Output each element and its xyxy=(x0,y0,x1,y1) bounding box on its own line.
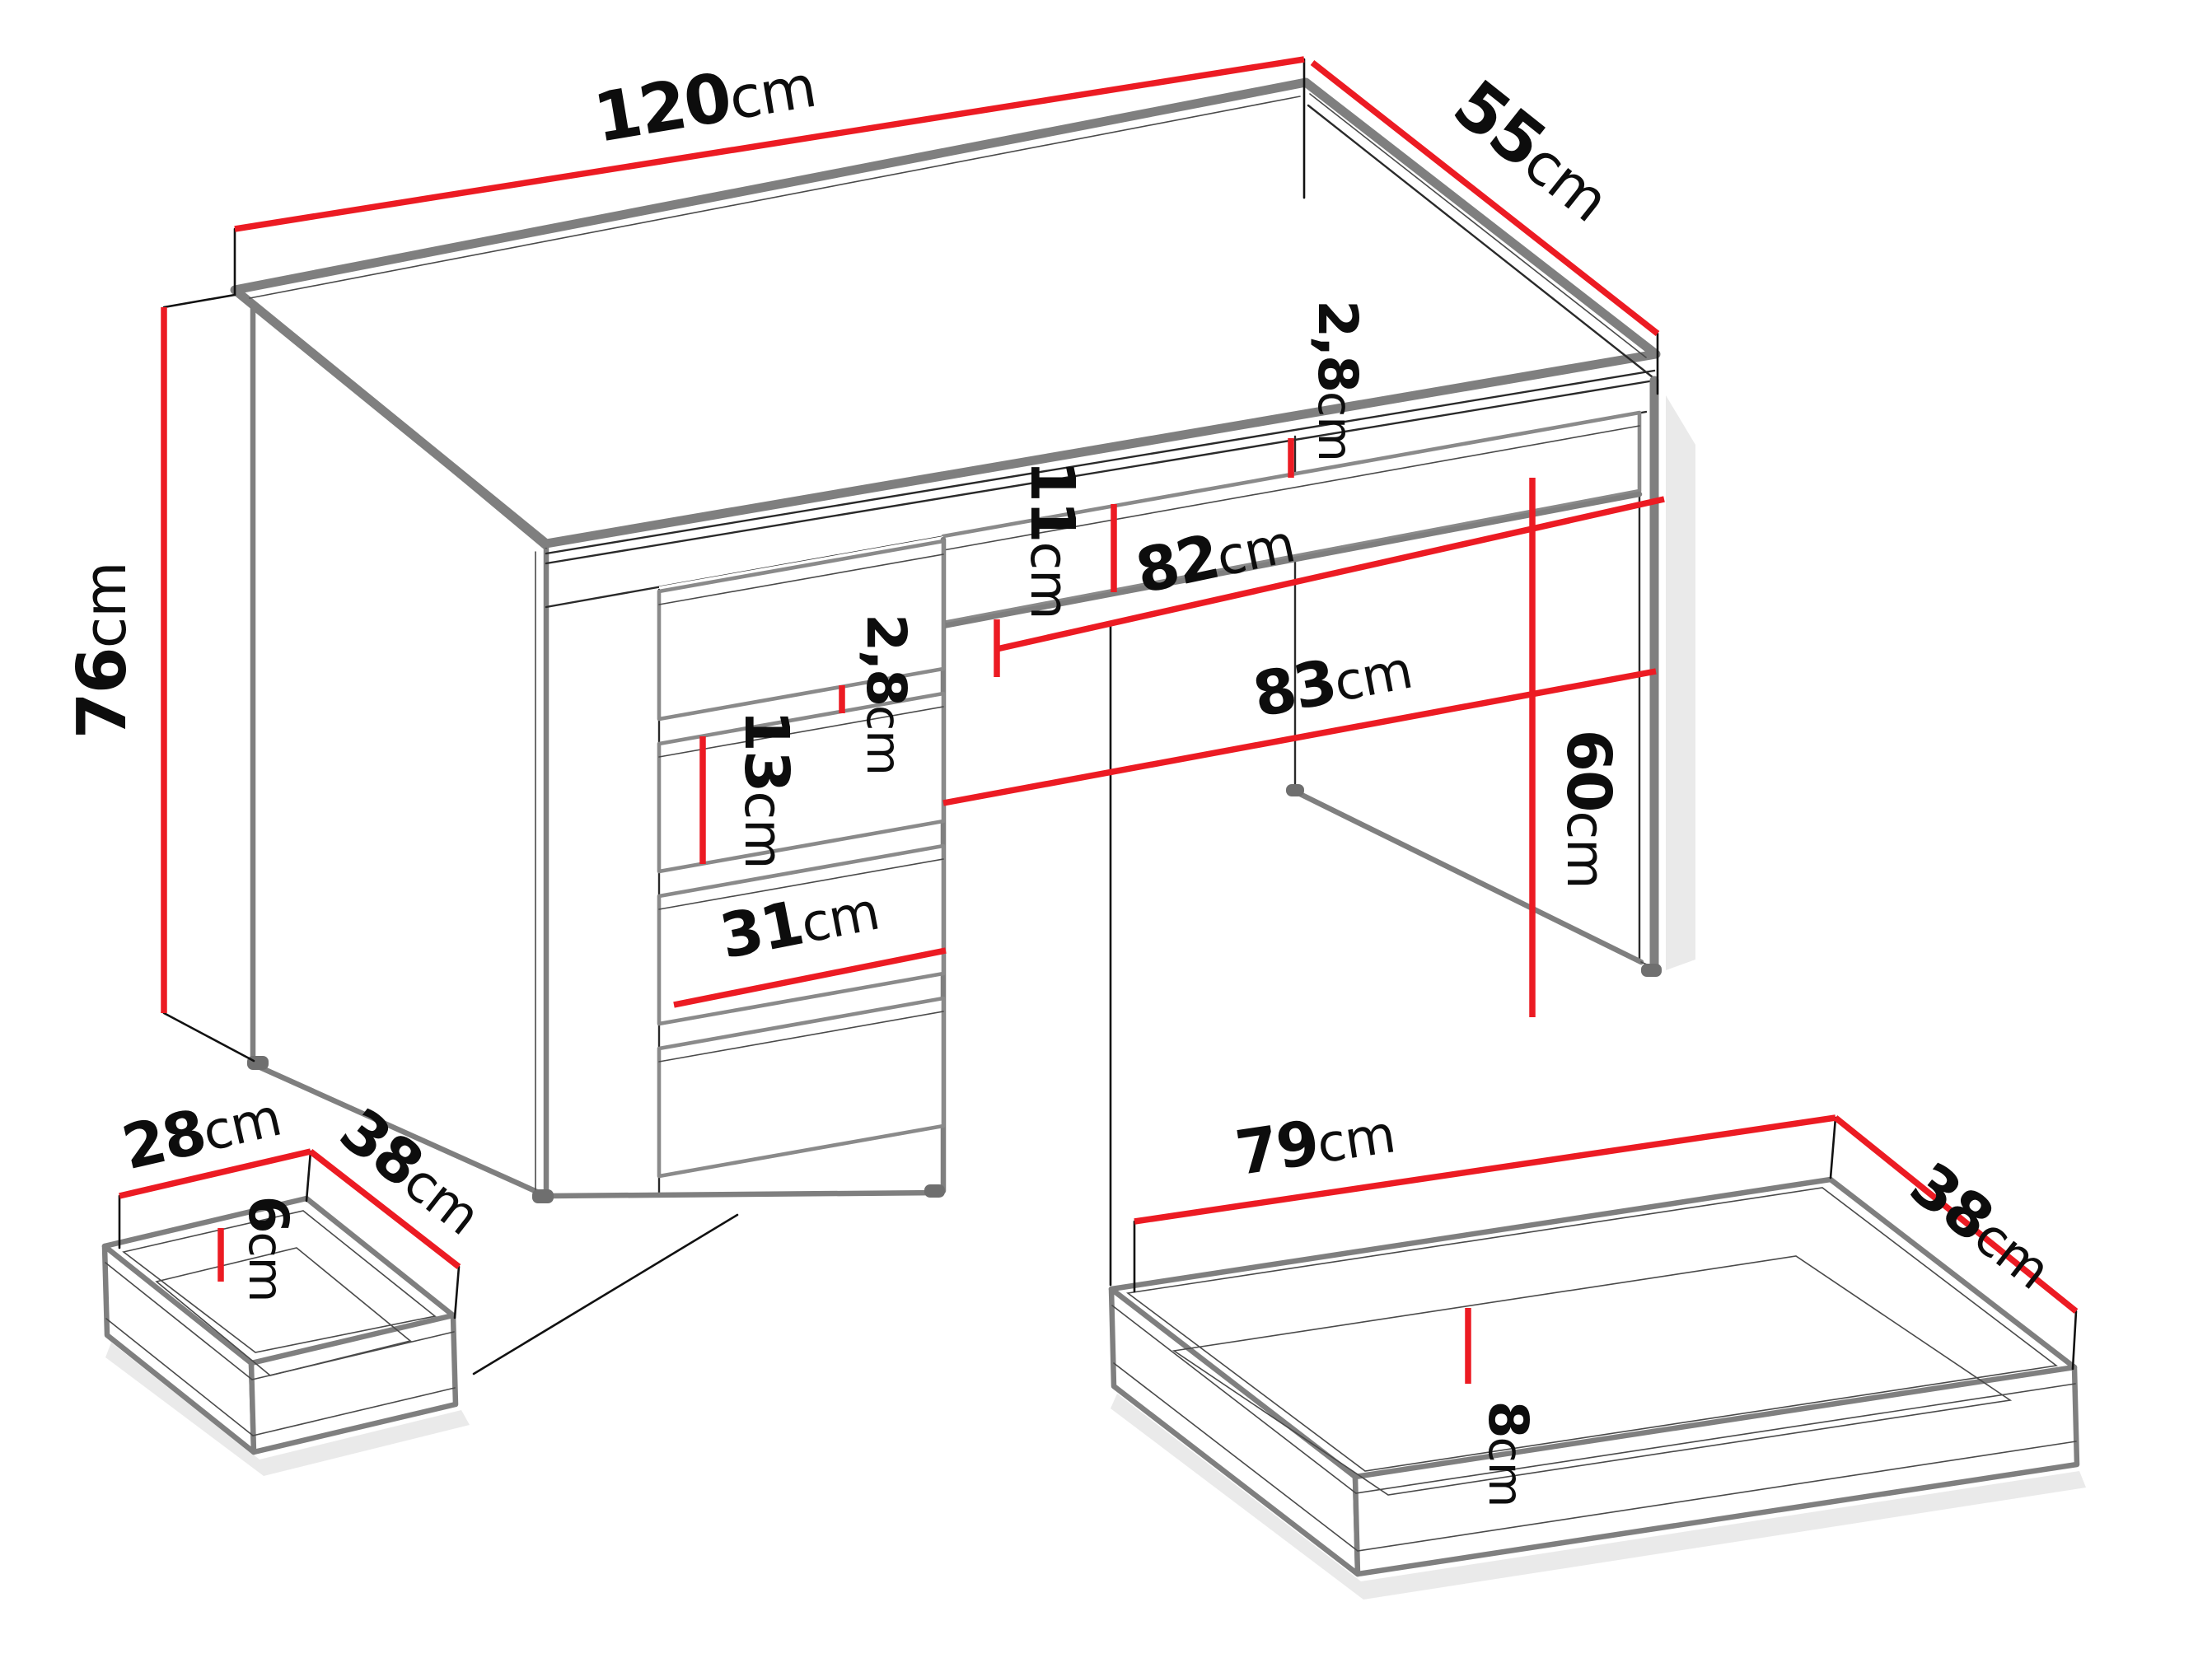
desk-foot-knee-back xyxy=(1286,784,1304,796)
label-desk-height: 76cm xyxy=(63,563,142,740)
height-dim-bottom-connector xyxy=(164,1013,254,1061)
label-knee-height: 60cm xyxy=(1553,730,1624,889)
small-drawer-leader-line xyxy=(474,1215,737,1374)
label-pencil-front-height: 11cm xyxy=(1017,460,1087,619)
height-dim-top-connector xyxy=(164,295,235,307)
label-small-drawer-height: 6cm xyxy=(236,1196,300,1302)
label-large-drawer-width: 79cm xyxy=(1232,1095,1400,1189)
diagram-page: 120cm 55cm 76cm 2,8cm 11cm 82cm 83cm 60c… xyxy=(0,0,2212,1658)
label-knee-width: 83cm xyxy=(1247,632,1417,731)
large-drawer-dim-apex-tick xyxy=(1831,1118,1836,1178)
small-drawer-dim-right-tick xyxy=(455,1267,459,1318)
desk-foot-front-right xyxy=(1641,964,1662,977)
desk-foot-front-left xyxy=(532,1189,554,1203)
desk-bottom-front-edge xyxy=(548,1193,942,1196)
desk-right-shadow xyxy=(1666,395,1695,970)
label-drawer-gap: 2,8cm xyxy=(854,614,918,775)
large-drawer-dim-right-tick xyxy=(2073,1311,2076,1369)
desk-foot-column xyxy=(924,1184,945,1198)
small-drawer-dim-apex-tick xyxy=(306,1151,311,1201)
label-drawer-front-height: 13cm xyxy=(731,710,802,869)
desk-dimension-diagram: 120cm 55cm 76cm 2,8cm 11cm 82cm 83cm 60c… xyxy=(0,0,2212,1658)
label-large-drawer-height: 8cm xyxy=(1476,1401,1540,1507)
label-small-drawer-depth: 28cm xyxy=(116,1079,287,1184)
desk-body xyxy=(235,82,1662,1203)
label-top-rail-height: 2,8cm xyxy=(1306,300,1369,461)
